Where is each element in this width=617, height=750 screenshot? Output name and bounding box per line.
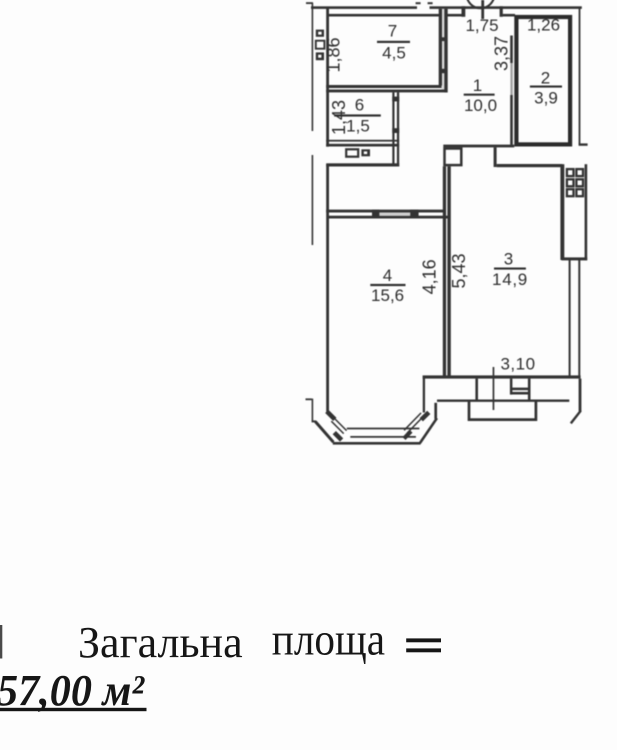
svg-text:1,26: 1,26 xyxy=(527,16,560,35)
svg-text:1: 1 xyxy=(473,76,482,95)
svg-text:4: 4 xyxy=(383,266,392,285)
svg-text:3,37: 3,37 xyxy=(491,36,511,71)
svg-text:15,6: 15,6 xyxy=(371,286,404,305)
svg-text:3: 3 xyxy=(504,250,513,269)
svg-text:Загальна: Загальна xyxy=(78,618,243,667)
svg-text:10,0: 10,0 xyxy=(464,96,497,115)
svg-text:6: 6 xyxy=(355,96,364,115)
svg-text:1,75: 1,75 xyxy=(465,16,498,35)
svg-text:площа: площа xyxy=(272,614,385,665)
svg-text:1,86: 1,86 xyxy=(323,37,343,72)
svg-text:7: 7 xyxy=(388,22,397,41)
svg-text:14,9: 14,9 xyxy=(492,270,528,289)
svg-text:57,00 м²: 57,00 м² xyxy=(0,666,145,715)
svg-text:2: 2 xyxy=(541,69,550,88)
svg-text:1,43: 1,43 xyxy=(329,100,349,135)
svg-text:5,43: 5,43 xyxy=(449,253,469,288)
svg-text:3,10: 3,10 xyxy=(500,355,535,374)
svg-text:3,9: 3,9 xyxy=(534,89,558,108)
svg-text:1,5: 1,5 xyxy=(346,117,370,136)
svg-text:4,16: 4,16 xyxy=(420,259,440,294)
svg-text:4,5: 4,5 xyxy=(382,44,406,63)
